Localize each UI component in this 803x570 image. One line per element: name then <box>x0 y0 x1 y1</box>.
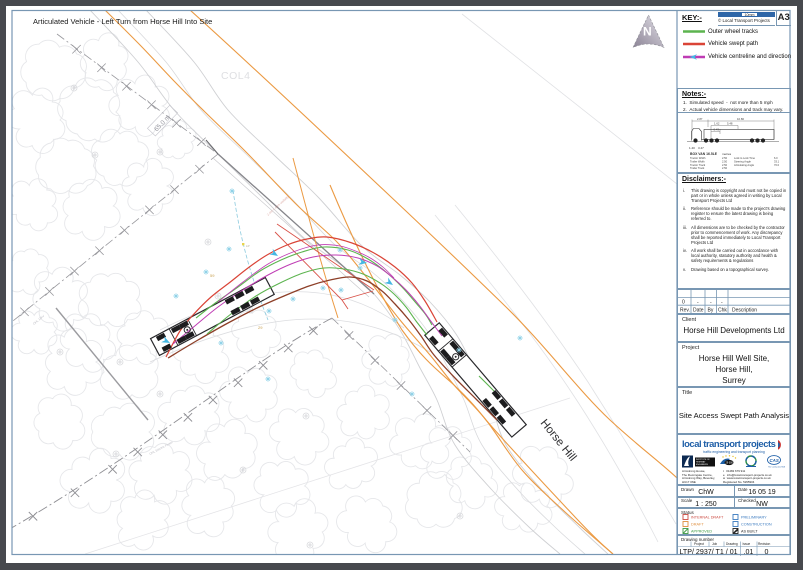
svg-text:Job: Job <box>712 542 717 546</box>
svg-text:Lock to Lock Time: Lock to Lock Time <box>734 156 755 160</box>
svg-text:ENGINEERS: ENGINEERS <box>696 464 708 466</box>
svg-text:2.50: 2.50 <box>722 166 728 170</box>
svg-text:-: - <box>697 299 699 305</box>
svg-text:59: 59 <box>210 273 215 278</box>
svg-text:Drawing: Drawing <box>726 542 738 546</box>
svg-text:2.87: 2.87 <box>697 117 703 121</box>
svg-text:PRELIMINARY: PRELIMINARY <box>741 516 767 520</box>
svg-text:Revision: Revision <box>758 542 770 546</box>
svg-text:Steering Angle: Steering Angle <box>734 159 751 163</box>
svg-text:COL4: COL4 <box>221 70 250 82</box>
svg-text:2.50: 2.50 <box>722 159 728 163</box>
svg-text:Tractor Width: Tractor Width <box>690 156 706 160</box>
svg-text:Rev.: Rev. <box>680 307 690 313</box>
svg-text:CONSTRUCTION: CONSTRUCTION <box>741 523 772 527</box>
svg-text:LTP/ 2937/ T1 / 01: LTP/ 2937/ T1 / 01 <box>680 548 738 556</box>
svg-text:BOX VAN 16.5LE: BOX VAN 16.5LE <box>690 152 718 156</box>
svg-text:AS BUILT: AS BUILT <box>741 530 758 534</box>
svg-text:APPROVED: APPROVED <box>691 530 712 534</box>
svg-text:29: 29 <box>258 325 263 330</box>
svg-text:Trailer Track: Trailer Track <box>690 166 705 170</box>
svg-text:0: 0 <box>682 299 685 305</box>
svg-text:CAS: CAS <box>770 458 779 463</box>
svg-text:6.0: 6.0 <box>774 156 778 160</box>
svg-text:2.50: 2.50 <box>722 156 728 160</box>
svg-text:LP: LP <box>246 244 250 248</box>
svg-text:0: 0 <box>765 548 769 556</box>
svg-text:33.1: 33.1 <box>774 159 780 163</box>
svg-text:1.40: 1.40 <box>689 146 695 150</box>
svg-text:Description: Description <box>732 307 757 313</box>
svg-text:By: By <box>708 307 714 313</box>
svg-text:The Contractors H&S: The Contractors H&S <box>768 466 786 469</box>
svg-text:Trailer Width: Trailer Width <box>690 159 705 163</box>
svg-text:Tractor Track: Tractor Track <box>690 163 706 167</box>
svg-text:Articulating Angle: Articulating Angle <box>734 163 755 167</box>
svg-text:metres: metres <box>722 152 732 156</box>
svg-text:3.47: 3.47 <box>698 146 704 150</box>
svg-text:Project: Project <box>694 542 704 546</box>
svg-text:N: N <box>643 25 652 39</box>
svg-text:Issue: Issue <box>743 542 751 546</box>
svg-text:INTERNAL DRAFT: INTERNAL DRAFT <box>691 516 724 520</box>
svg-text:-: - <box>721 299 723 305</box>
svg-text:OHL Electric Power: OHL Electric Power <box>149 440 174 456</box>
svg-text:Chk: Chk <box>718 307 727 313</box>
svg-text:.01: .01 <box>744 548 754 556</box>
svg-text:70.0: 70.0 <box>774 163 780 167</box>
svg-text:1.62: 1.62 <box>714 122 720 126</box>
svg-text:Date: Date <box>693 307 704 313</box>
svg-text:10.80: 10.80 <box>737 117 744 121</box>
svg-text:-: - <box>710 299 712 305</box>
svg-text:29 000: 29 000 <box>726 462 734 465</box>
svg-text:2.50: 2.50 <box>722 163 728 167</box>
svg-text:5.48: 5.48 <box>727 122 733 126</box>
svg-text:DRAFT: DRAFT <box>691 523 704 527</box>
